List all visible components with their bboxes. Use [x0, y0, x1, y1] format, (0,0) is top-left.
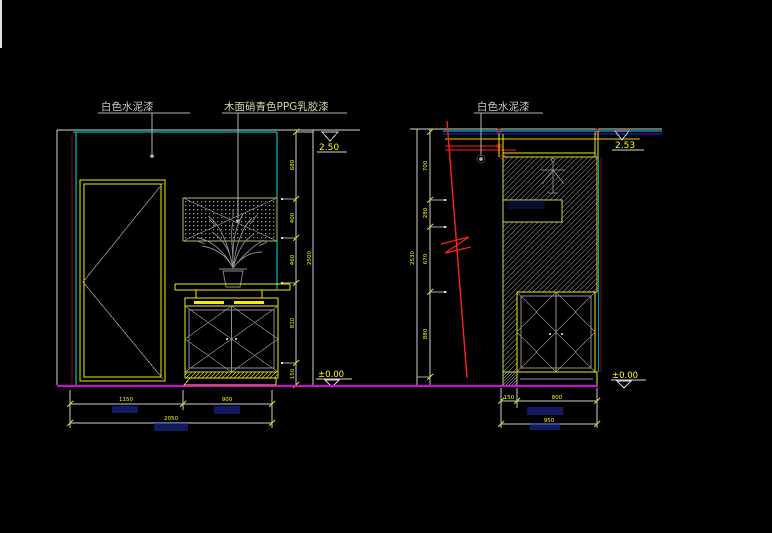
left-dim-v-total: 2500 — [307, 251, 313, 265]
right-level-top-value: 2.53 — [615, 141, 635, 151]
left-lattice-panel — [183, 198, 277, 241]
right-dim-v-2: 670 — [423, 253, 429, 264]
left-level-floor-value: ±0.00 — [318, 370, 344, 380]
right-vertical-dim-chain: 700 280 670 880 2530 — [410, 129, 447, 380]
right-bulkhead — [497, 129, 600, 160]
left-dim-b-0: 1150 — [119, 397, 133, 403]
left-wardrobe — [80, 180, 165, 381]
left-dim-b-1: 900 — [222, 397, 233, 403]
watermark-artifacts — [112, 200, 563, 431]
right-plinth-hatch-block — [503, 372, 517, 386]
left-cabinet-drawer-handle-1 — [194, 301, 224, 304]
right-dim-v-0: 700 — [423, 160, 429, 171]
left-panel-paint-label: 木面硝青色PPG乳胶漆 — [224, 100, 329, 113]
left-cabinet-plinth — [184, 378, 276, 385]
right-dim-b-0: 150 — [504, 395, 515, 401]
left-wardrobe-door-swing — [83, 183, 163, 379]
left-cabinet-drawer-handle-2 — [234, 301, 264, 304]
right-level-marker-floor: ±0.00 — [611, 371, 646, 388]
right-dim-v-3: 880 — [423, 328, 429, 339]
cad-drawing-svg: 白色水泥漆 木面硝青色PPG乳胶漆 — [0, 0, 772, 533]
left-console-shelf — [175, 284, 290, 298]
left-level-marker-top: 2.50 — [317, 132, 347, 153]
left-level-top-value: 2.50 — [319, 143, 339, 153]
right-cabinet — [503, 292, 597, 386]
left-cabinet — [184, 298, 278, 385]
left-wall-paint-label: 白色水泥漆 — [101, 100, 154, 113]
screen-edge-artifact — [0, 0, 2, 48]
section-cut-line — [441, 121, 471, 378]
left-dim-v-1: 400 — [290, 212, 296, 223]
right-wall-paint-leader-dot — [479, 157, 483, 161]
right-section-drawing: 白色水泥漆 700 280 670 880 2530 — [410, 100, 662, 428]
left-vertical-dim-chain: 680 400 460 810 150 2500 — [281, 129, 313, 388]
left-dim-b-total: 2050 — [164, 416, 178, 422]
red-node-circles — [497, 129, 600, 160]
right-wall-paint-label: 白色水泥漆 — [477, 100, 530, 113]
right-level-floor-value: ±0.00 — [612, 371, 638, 381]
cad-canvas: 白色水泥漆 木面硝青色PPG乳胶漆 — [0, 0, 772, 533]
right-dim-v-total: 2530 — [410, 251, 416, 265]
left-dim-v-0: 680 — [290, 159, 296, 170]
left-wall-paint-leader-dot — [150, 154, 154, 158]
right-dim-v-1: 280 — [423, 207, 429, 218]
left-level-marker-floor: ±0.00 — [316, 370, 352, 387]
left-wall-paint-leader — [98, 113, 190, 154]
left-elevation-drawing: 白色水泥漆 木面硝青色PPG乳胶漆 — [57, 100, 360, 428]
right-ceiling-red — [445, 146, 516, 150]
left-wall-lines — [73, 132, 277, 385]
left-dim-v-4: 150 — [290, 368, 296, 379]
left-dim-v-3: 810 — [290, 317, 296, 328]
right-dim-b-1: 800 — [552, 395, 563, 401]
left-dim-v-2: 460 — [290, 254, 296, 265]
left-bottom-dims: 1150 900 2050 — [67, 390, 275, 428]
left-cabinet-kick-hatch — [185, 372, 278, 378]
